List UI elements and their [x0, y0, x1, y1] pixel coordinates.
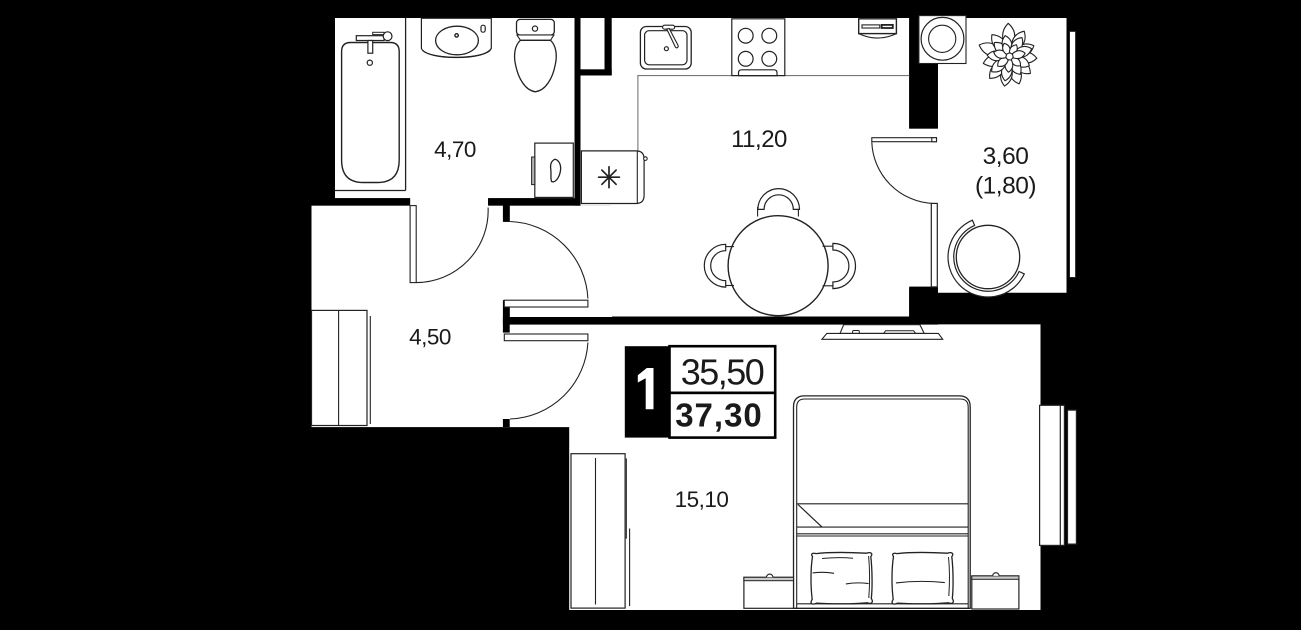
svg-text:37,30: 37,30 [675, 397, 763, 434]
svg-text:15,10: 15,10 [675, 487, 729, 512]
svg-text:4,50: 4,50 [409, 325, 451, 350]
svg-text:4,70: 4,70 [434, 137, 476, 162]
svg-text:35,50: 35,50 [681, 352, 764, 393]
svg-text:3,60: 3,60 [983, 143, 1029, 170]
svg-text:11,20: 11,20 [731, 126, 787, 153]
svg-text:(1,80): (1,80) [975, 173, 1036, 200]
